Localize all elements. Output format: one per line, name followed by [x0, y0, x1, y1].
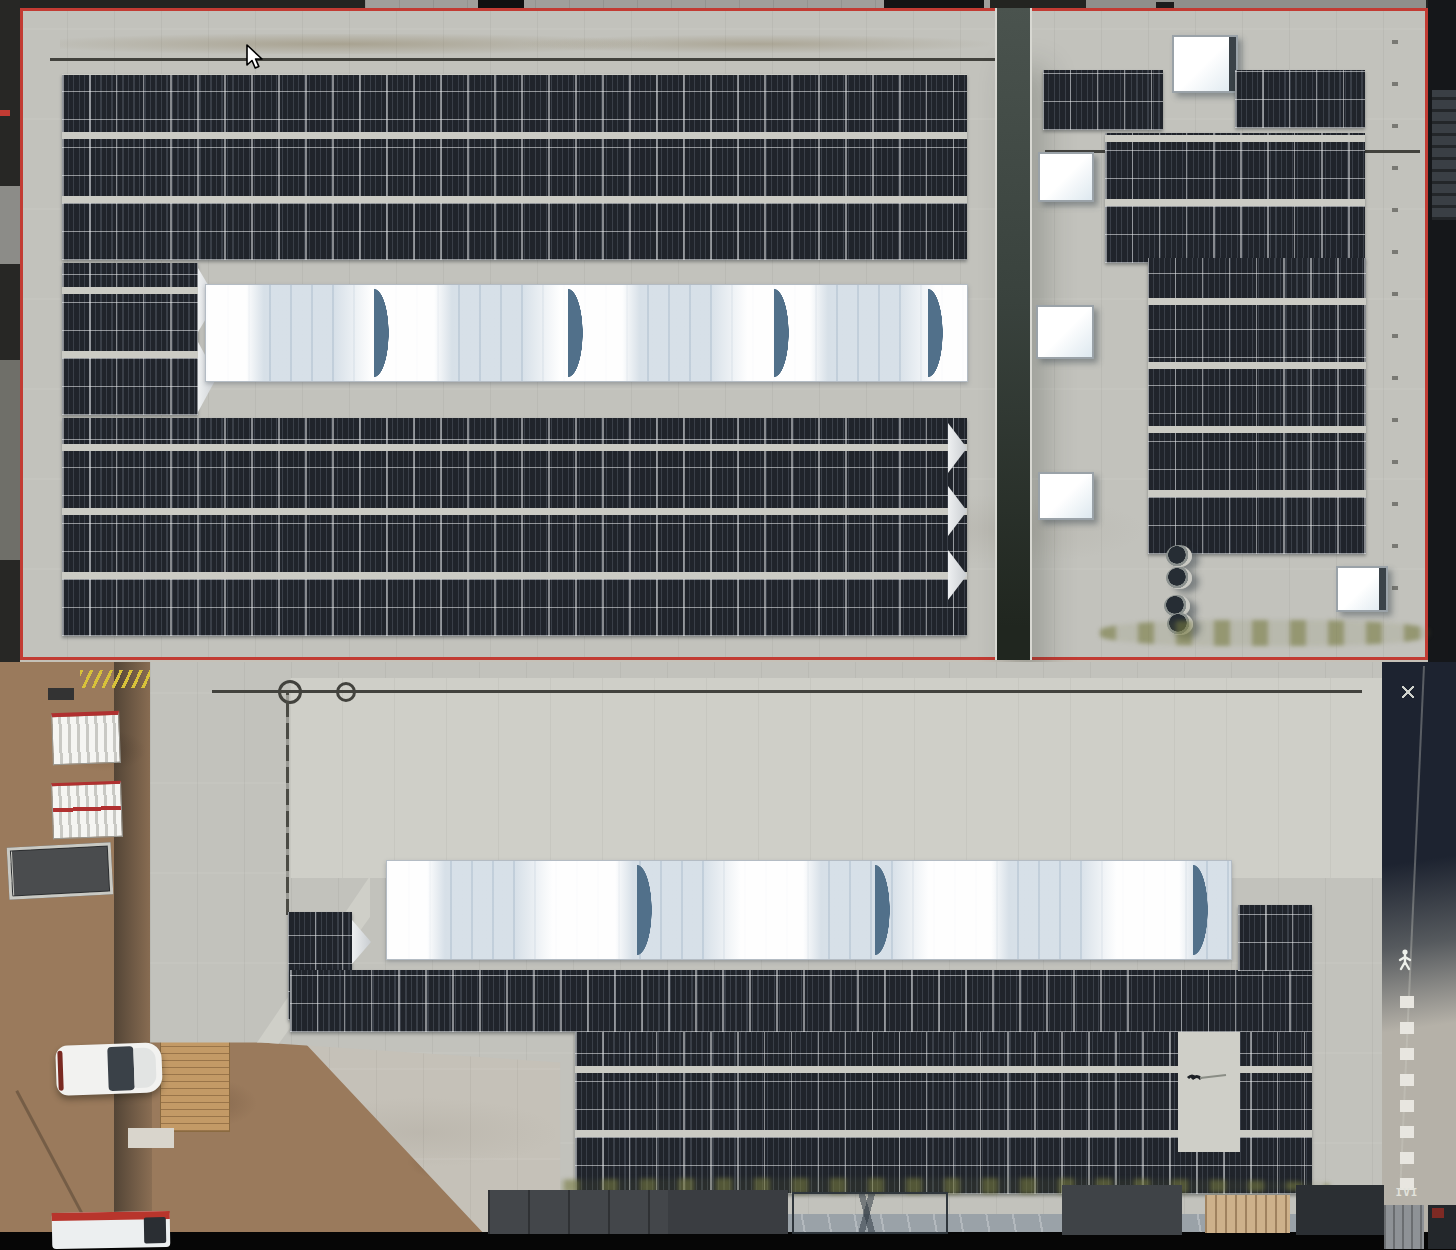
container-red-bit	[1432, 1208, 1444, 1218]
solar-block-right-a	[1043, 70, 1163, 130]
skylight-end-shadow	[568, 288, 598, 378]
right-parapet-mounts	[1392, 28, 1398, 628]
adjacent-gray-slab	[0, 186, 22, 264]
skylight-end-shadow	[374, 288, 404, 378]
skylight-end-shadow	[928, 288, 958, 378]
ground-crates-2	[668, 1190, 788, 1234]
roof-vent	[1166, 545, 1192, 567]
roof-conduit-bottom	[212, 690, 1362, 693]
top-roof-complex	[20, 8, 1428, 660]
rooftop-plant	[1184, 1070, 1228, 1086]
walkway-dash-markings	[1400, 984, 1414, 1190]
adjacent-gray-slab-2	[0, 360, 20, 560]
van-windshield	[144, 1217, 166, 1243]
moss-strip	[1100, 620, 1430, 646]
flatbed-ramp-trailer	[7, 842, 114, 899]
ground-crates-1	[488, 1190, 668, 1234]
surrounding-right-structure	[1432, 90, 1456, 220]
ground-crates-3	[1062, 1185, 1182, 1235]
barrel-skylight-strip-top	[205, 284, 968, 382]
array-gap	[1178, 1032, 1240, 1152]
solar-block-right-c	[1105, 133, 1365, 263]
market-trailer-1	[51, 711, 121, 765]
conduit-loop	[336, 682, 356, 702]
dome-skylight-3	[1036, 305, 1094, 359]
dome-skylight-5	[1336, 566, 1388, 612]
ground-crates-4	[1296, 1185, 1384, 1235]
dome-skylight-1	[1172, 35, 1238, 93]
small-dark-object	[48, 688, 74, 700]
market-trailer-2	[51, 781, 123, 839]
skylight-end-shadow	[1193, 864, 1223, 956]
yard-path	[128, 1128, 174, 1148]
surrounding-left-dark	[0, 0, 20, 662]
walkway-end-marking: IVI	[1390, 1186, 1424, 1200]
solar-array-left-side	[62, 263, 198, 415]
road-arrow-marking	[1402, 686, 1414, 698]
parapet-grime-top	[60, 34, 990, 54]
bottom-black-band	[0, 1232, 1456, 1250]
mouse-cursor	[244, 44, 264, 72]
canopy-box	[792, 1192, 948, 1234]
roof-vent	[1166, 567, 1192, 589]
solar-block-right-upper	[1238, 905, 1312, 971]
pedestrian-symbol-marking	[1396, 948, 1414, 972]
roof-conduit-top	[50, 58, 995, 61]
skylight-end-shadow	[774, 288, 804, 378]
roof-valley-gutter	[995, 8, 1032, 660]
adjacent-red-edge	[0, 110, 10, 116]
pallet-stack	[160, 1040, 230, 1132]
solar-block-right-b	[1235, 70, 1365, 128]
barrel-skylight-strip-bottom	[386, 860, 1232, 960]
white-red-van	[52, 1211, 171, 1249]
conduit-loop	[278, 680, 302, 704]
skylight-end-shadow	[637, 864, 667, 956]
aerial-photo-canvas: IVI	[0, 0, 1456, 1250]
dome-skylight-4	[1038, 472, 1094, 520]
solar-array-field-upper	[62, 74, 967, 260]
roof-apron-bright	[290, 678, 1382, 878]
container-right	[1384, 1205, 1424, 1249]
car-windshield	[107, 1046, 135, 1091]
white-car	[55, 1042, 163, 1096]
pallet-stack-bottom	[1205, 1195, 1290, 1233]
solar-array-field-lower	[62, 418, 967, 636]
solar-block-right-d	[1148, 258, 1366, 554]
conduit-vertical	[286, 693, 289, 915]
car-roofline	[133, 1047, 156, 1088]
car-taillight	[57, 1051, 63, 1091]
skylight-end-shadow	[875, 864, 905, 956]
dome-skylight-2	[1038, 152, 1094, 202]
solar-band-full-width	[290, 970, 1312, 1032]
